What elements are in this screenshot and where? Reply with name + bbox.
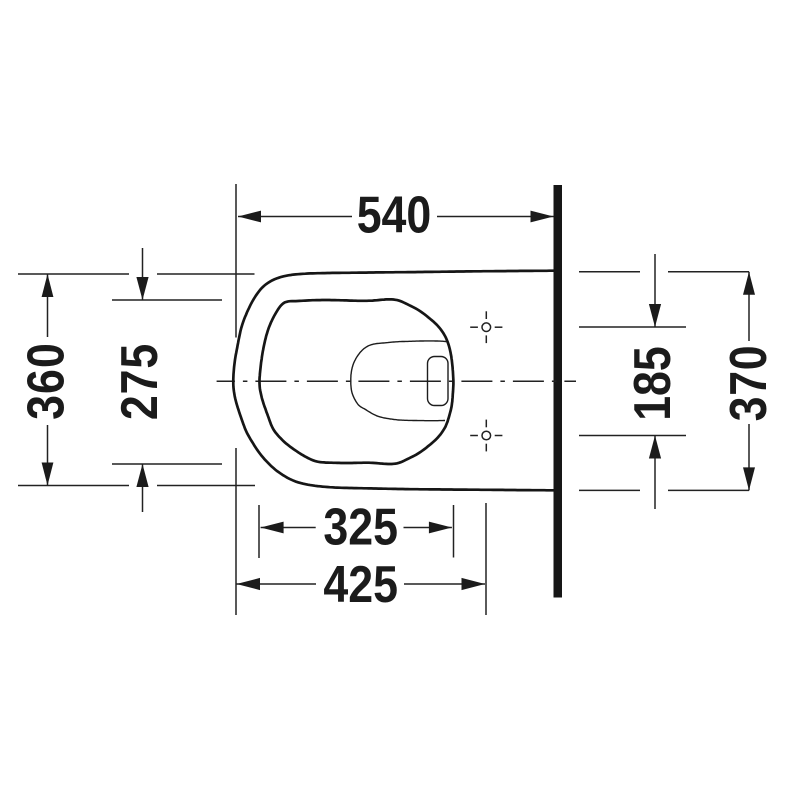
- svg-text:370: 370: [720, 345, 778, 422]
- svg-text:185: 185: [624, 346, 682, 421]
- svg-text:425: 425: [323, 556, 398, 614]
- svg-text:540: 540: [357, 186, 432, 244]
- svg-text:275: 275: [111, 343, 169, 420]
- svg-text:360: 360: [17, 342, 75, 420]
- svg-text:325: 325: [323, 498, 398, 556]
